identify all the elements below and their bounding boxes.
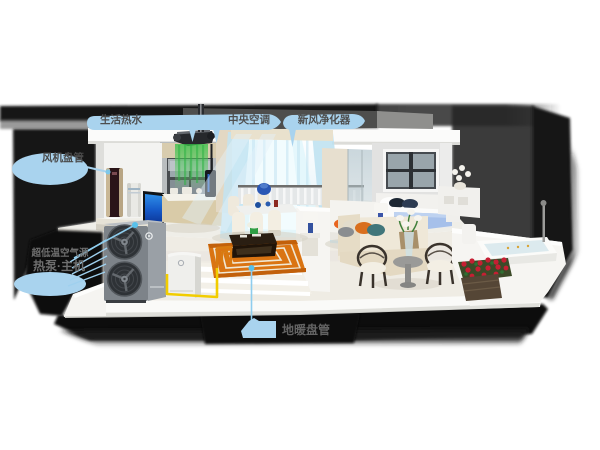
svg-text:生活热水: 生活热水: [100, 113, 142, 126]
svg-text:超低温空气源: 超低温空气源: [30, 247, 89, 259]
svg-text:地暖盘管: 地暖盘管: [282, 322, 330, 337]
svg-text:热泵·主机: 热泵·主机: [33, 258, 85, 273]
svg-text:新风净化器: 新风净化器: [298, 113, 351, 126]
svg-text:中央空调: 中央空调: [228, 113, 270, 126]
svg-text:风机盘管: 风机盘管: [42, 151, 84, 164]
